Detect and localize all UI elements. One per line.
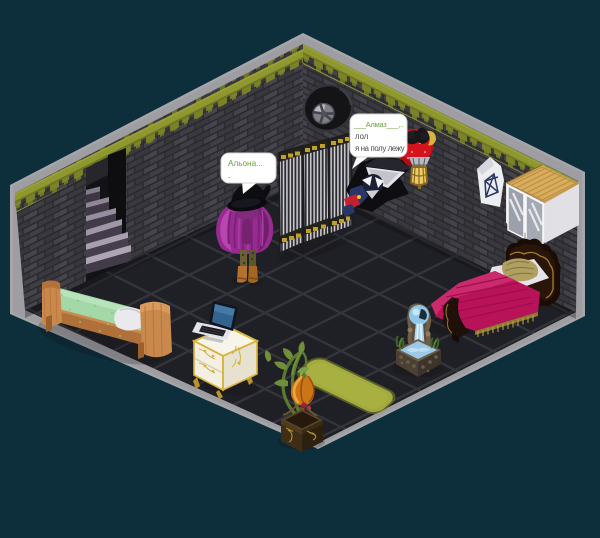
svg-text:___Алмаз___,..: ___Алмаз___,.. (353, 120, 404, 129)
svg-text:я на полу лежу: я на полу лежу (355, 144, 405, 153)
svg-text:Альона...: Альона... (228, 159, 263, 168)
svg-text:лол: лол (355, 132, 369, 141)
svg-text:.: . (228, 171, 230, 180)
